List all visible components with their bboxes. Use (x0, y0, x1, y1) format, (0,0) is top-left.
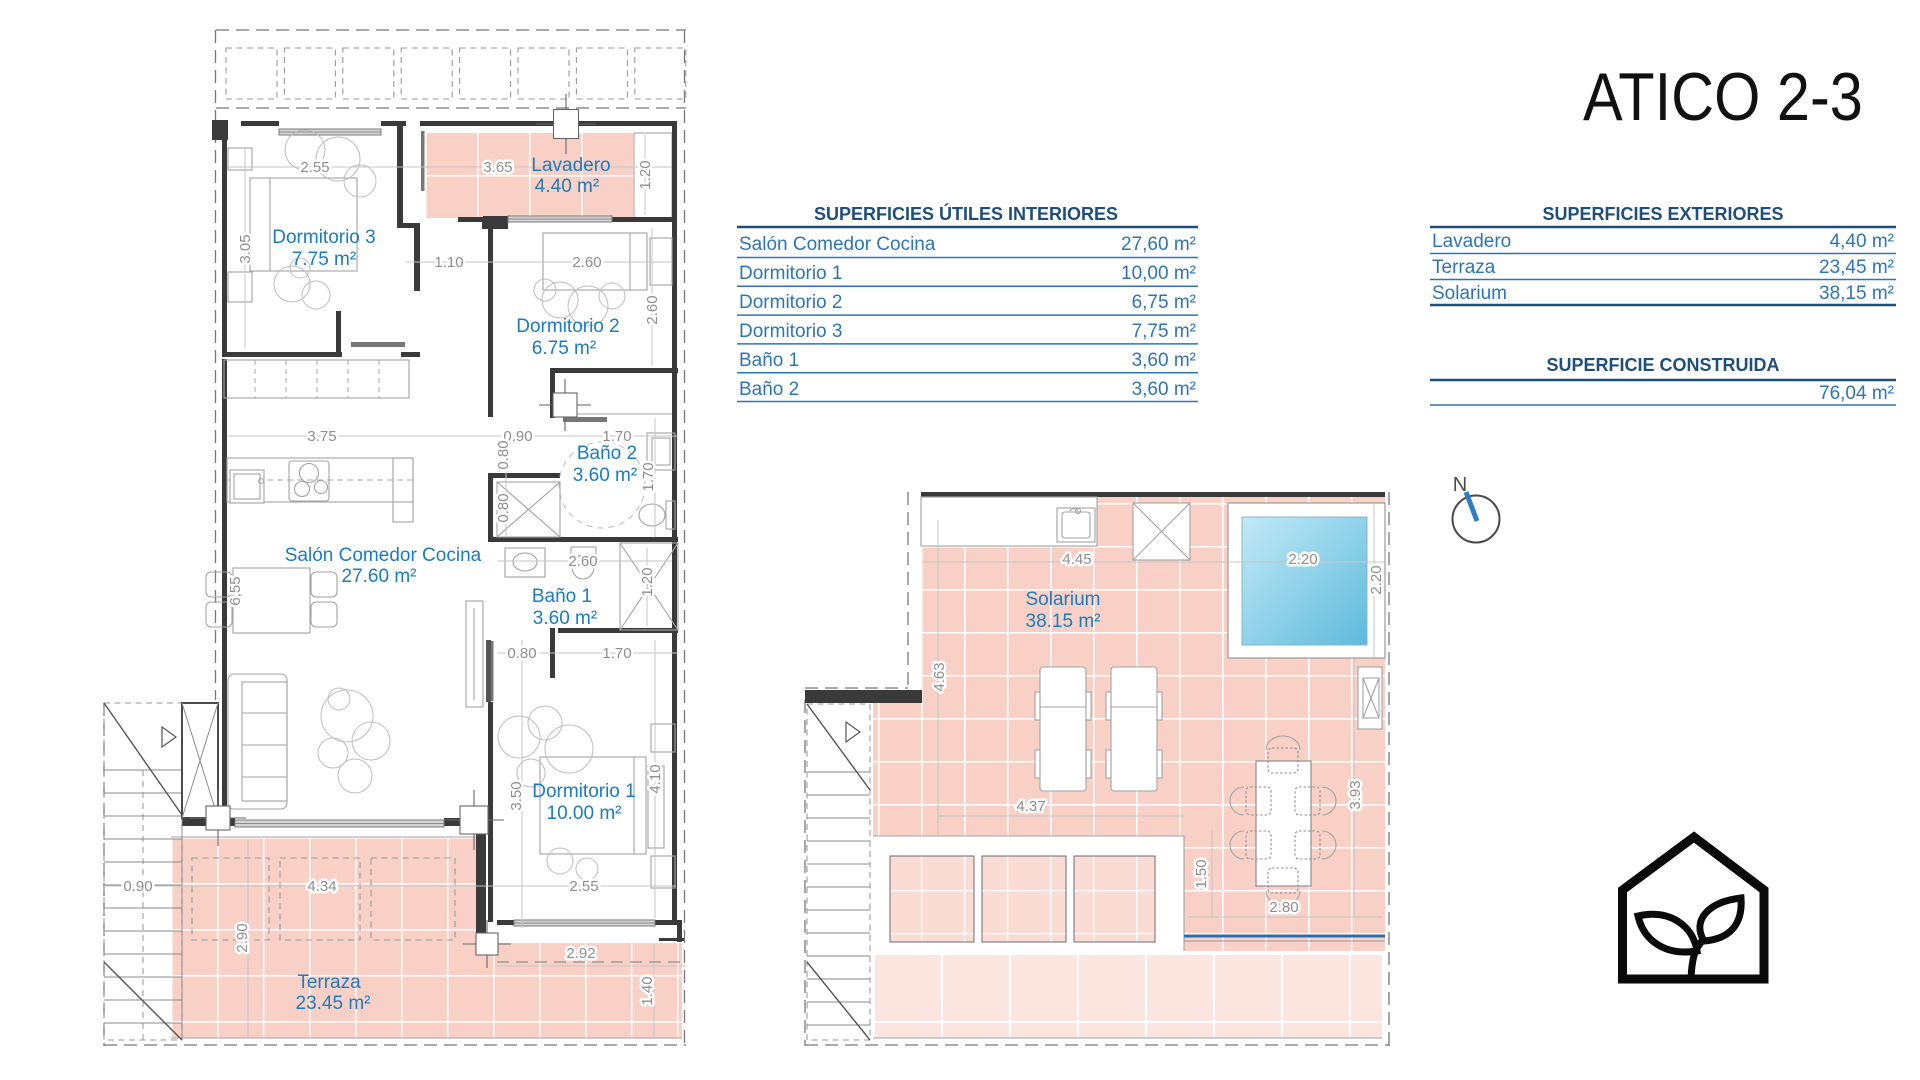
svg-text:2.55: 2.55 (300, 159, 329, 176)
svg-text:1.20: 1.20 (637, 160, 654, 189)
svg-text:N: N (1453, 474, 1467, 496)
svg-text:3.05: 3.05 (237, 234, 254, 263)
svg-text:Baño 2: Baño 2 (739, 379, 799, 400)
svg-text:2.60: 2.60 (568, 553, 597, 570)
svg-text:2.20: 2.20 (1288, 551, 1317, 568)
svg-text:ATICO 2-3: ATICO 2-3 (1583, 58, 1863, 135)
svg-text:Lavadero: Lavadero (1432, 231, 1511, 252)
svg-text:4.10: 4.10 (647, 764, 664, 793)
svg-text:0.80: 0.80 (507, 645, 536, 662)
svg-text:6.75 m²: 6.75 m² (532, 338, 596, 359)
svg-text:Dormitorio 2: Dormitorio 2 (516, 316, 619, 337)
svg-text:4.34: 4.34 (307, 878, 336, 895)
svg-text:0.80: 0.80 (495, 440, 512, 469)
svg-text:4.37: 4.37 (1016, 798, 1045, 815)
svg-text:27,60 m²: 27,60 m² (1121, 234, 1196, 255)
svg-text:3.75: 3.75 (307, 428, 336, 445)
svg-text:2.55: 2.55 (569, 878, 598, 895)
svg-text:1.50: 1.50 (1193, 859, 1210, 888)
svg-text:23,45 m²: 23,45 m² (1819, 257, 1894, 278)
svg-text:3.60 m²: 3.60 m² (573, 465, 637, 486)
svg-text:1.10: 1.10 (434, 254, 463, 271)
svg-text:2.90: 2.90 (234, 923, 251, 952)
svg-text:Solarium: Solarium (1026, 589, 1101, 610)
svg-text:10,00 m²: 10,00 m² (1121, 263, 1196, 284)
svg-text:38.15 m²: 38.15 m² (1026, 611, 1101, 632)
svg-text:76,04 m²: 76,04 m² (1819, 383, 1894, 404)
svg-text:Lavadero: Lavadero (531, 155, 610, 176)
svg-text:4.63: 4.63 (931, 662, 948, 691)
svg-text:7.75 m²: 7.75 m² (292, 249, 356, 270)
svg-text:Dormitorio 3: Dormitorio 3 (272, 227, 375, 248)
svg-text:1.40: 1.40 (639, 976, 656, 1005)
svg-text:7,75 m²: 7,75 m² (1132, 321, 1196, 342)
svg-text:1.70: 1.70 (640, 462, 657, 491)
svg-text:0.90: 0.90 (123, 878, 152, 895)
svg-text:2.92: 2.92 (566, 945, 595, 962)
svg-text:10.00 m²: 10.00 m² (547, 803, 622, 824)
svg-text:4.45: 4.45 (1062, 551, 1091, 568)
svg-text:Baño 2: Baño 2 (577, 443, 637, 464)
svg-text:3,60 m²: 3,60 m² (1132, 379, 1196, 400)
svg-text:38,15 m²: 38,15 m² (1819, 283, 1894, 304)
svg-text:SUPERFICIE CONSTRUIDA: SUPERFICIE CONSTRUIDA (1546, 355, 1779, 375)
svg-text:Baño 1: Baño 1 (532, 586, 592, 607)
svg-text:3,60 m²: 3,60 m² (1132, 350, 1196, 371)
svg-text:6,75 m²: 6,75 m² (1132, 292, 1196, 313)
svg-text:Terraza: Terraza (1432, 257, 1496, 278)
svg-text:Terraza: Terraza (297, 972, 361, 993)
svg-text:Baño 1: Baño 1 (739, 350, 799, 371)
svg-text:2.60: 2.60 (644, 295, 661, 324)
svg-text:SUPERFICIES EXTERIORES: SUPERFICIES EXTERIORES (1542, 204, 1783, 224)
svg-text:2.60: 2.60 (572, 254, 601, 271)
svg-text:4,40 m²: 4,40 m² (1830, 231, 1894, 252)
svg-text:Solarium: Solarium (1432, 283, 1507, 304)
svg-text:23.45 m²: 23.45 m² (296, 993, 371, 1014)
svg-text:Dormitorio 1: Dormitorio 1 (739, 263, 842, 284)
svg-text:0.80: 0.80 (495, 493, 512, 522)
svg-text:Dormitorio 2: Dormitorio 2 (739, 292, 842, 313)
svg-text:Dormitorio 1: Dormitorio 1 (532, 781, 635, 802)
svg-text:3.65: 3.65 (483, 159, 512, 176)
svg-text:Dormitorio 3: Dormitorio 3 (739, 321, 842, 342)
svg-text:3.50: 3.50 (508, 781, 525, 810)
svg-text:4.40 m²: 4.40 m² (535, 176, 599, 197)
svg-text:2.20: 2.20 (1368, 565, 1385, 594)
svg-text:3.93: 3.93 (1347, 780, 1364, 809)
svg-text:1.20: 1.20 (639, 567, 656, 596)
svg-text:6,55: 6,55 (227, 576, 244, 605)
svg-text:SUPERFICIES ÚTILES INTERIORES: SUPERFICIES ÚTILES INTERIORES (814, 203, 1118, 224)
svg-text:2.80: 2.80 (1269, 899, 1298, 916)
svg-text:Salón Comedor Cocina: Salón Comedor Cocina (285, 545, 482, 566)
svg-text:3.60 m²: 3.60 m² (533, 608, 597, 629)
svg-text:27.60 m²: 27.60 m² (342, 566, 417, 587)
svg-text:Salón Comedor Cocina: Salón Comedor Cocina (739, 234, 936, 255)
svg-text:1.70: 1.70 (602, 645, 631, 662)
